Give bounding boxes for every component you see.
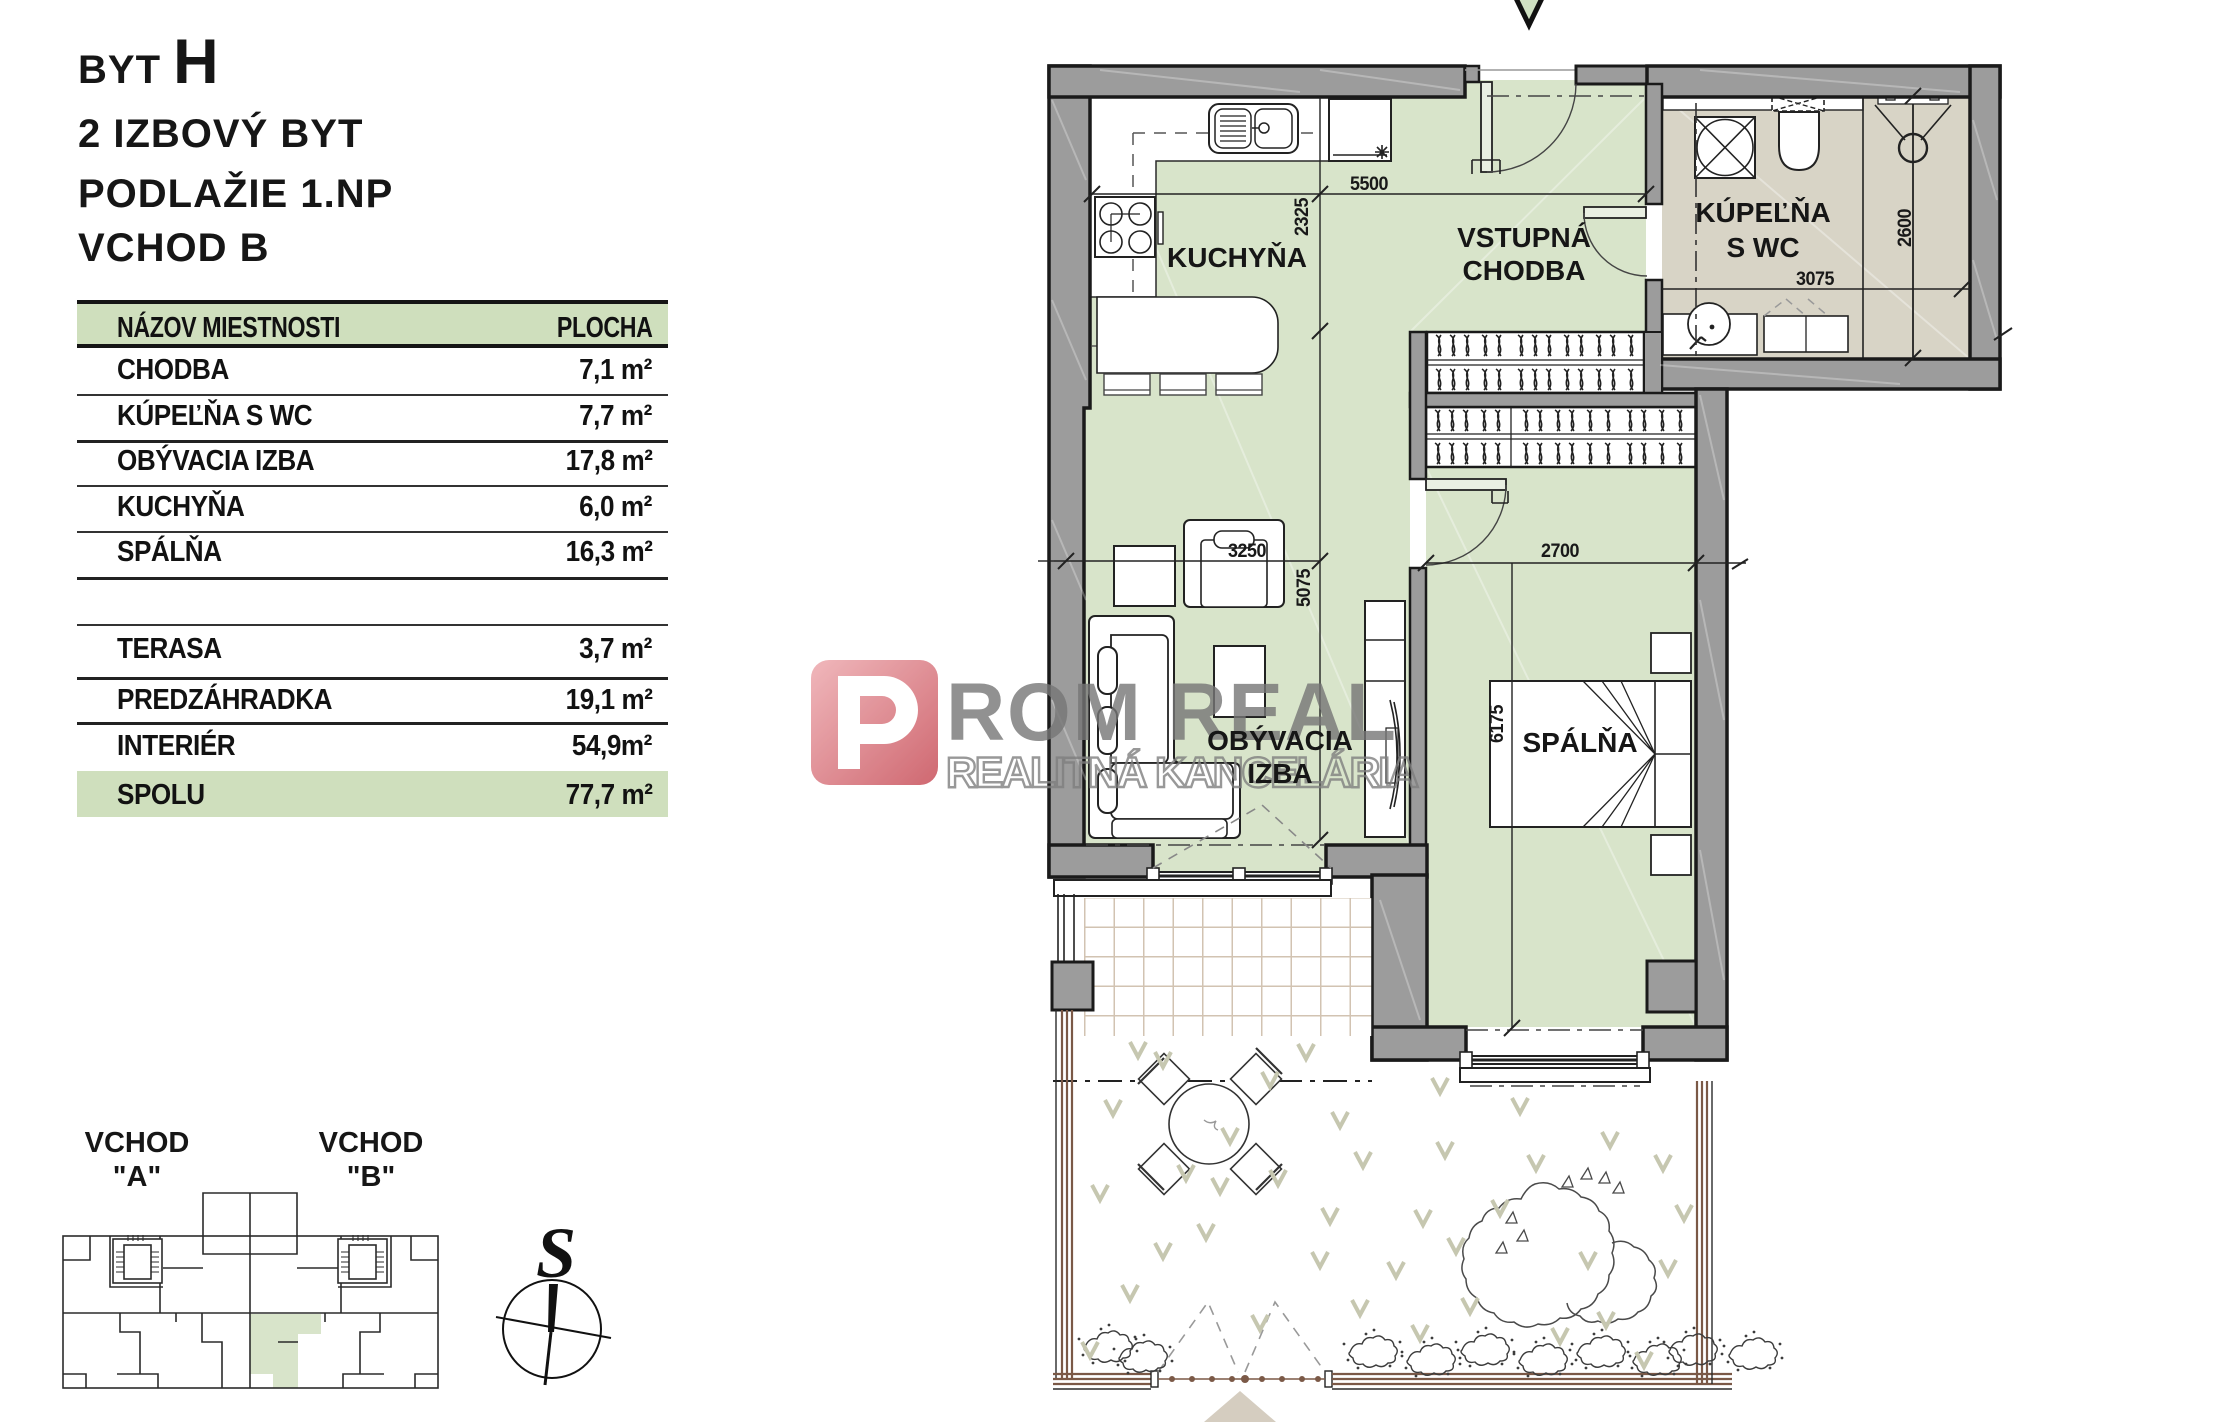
svg-text:2600: 2600 [1895,209,1916,247]
svg-text:KÚPEĽŇA: KÚPEĽŇA [1695,197,1830,228]
svg-text:KUCHYŇA: KUCHYŇA [1167,242,1307,273]
svg-text:S WC: S WC [1726,232,1799,263]
svg-text:SPÁLŇA: SPÁLŇA [1522,727,1637,758]
svg-text:CHODBA: CHODBA [1463,255,1586,286]
svg-text:VCHOD: VCHOD [85,1127,190,1159]
svg-text:3250: 3250 [1228,541,1266,562]
svg-text:2700: 2700 [1541,541,1579,562]
svg-text:6175: 6175 [1487,704,1508,743]
svg-text:REALITNÁ KANCELÁRIA: REALITNÁ KANCELÁRIA [946,749,1419,797]
svg-text:OBÝVACIA: OBÝVACIA [1207,725,1353,756]
svg-text:5075: 5075 [1294,568,1315,607]
svg-text:5500: 5500 [1350,174,1388,195]
svg-text:"A": "A" [113,1161,161,1193]
svg-text:VSTUPNÁ: VSTUPNÁ [1457,222,1591,253]
svg-text:"B": "B" [347,1161,395,1193]
svg-text:3075: 3075 [1796,269,1835,290]
svg-text:VCHOD: VCHOD [319,1127,424,1159]
svg-text:IZBA: IZBA [1247,758,1312,789]
svg-text:2325: 2325 [1292,197,1313,236]
